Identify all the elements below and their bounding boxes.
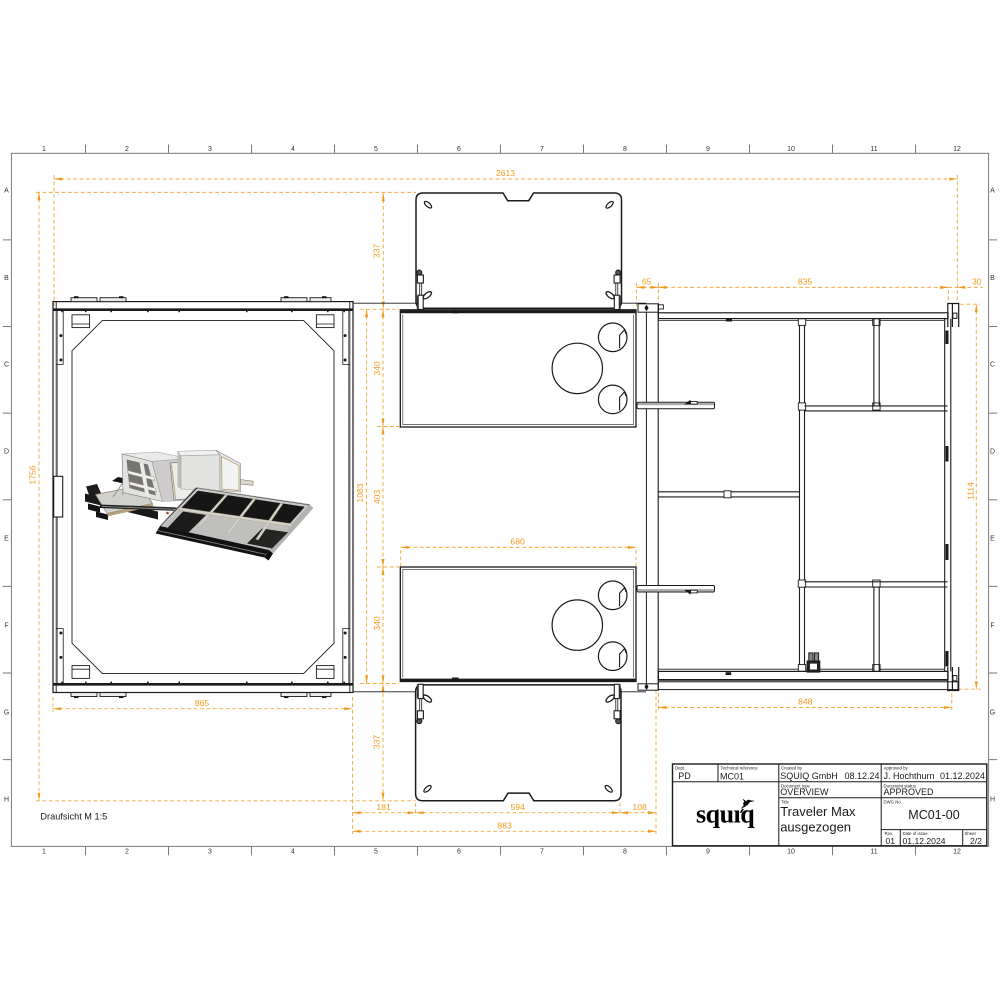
svg-text:403: 403 (372, 490, 382, 505)
svg-text:1: 1 (42, 849, 46, 856)
svg-text:SQUIQ GmbH: SQUIQ GmbH (780, 771, 838, 781)
svg-text:1114: 1114 (966, 482, 976, 500)
svg-text:10: 10 (787, 849, 795, 856)
svg-text:APPROVED: APPROVED (884, 787, 935, 797)
svg-text:6: 6 (457, 849, 461, 856)
svg-text:A: A (990, 188, 995, 195)
svg-text:2: 2 (125, 849, 129, 856)
svg-text:3: 3 (208, 849, 212, 856)
svg-text:3: 3 (208, 146, 212, 153)
svg-text:7: 7 (540, 849, 544, 856)
svg-text:E: E (990, 536, 995, 543)
svg-text:12: 12 (953, 849, 961, 856)
svg-text:30: 30 (972, 277, 982, 287)
svg-text:PD: PD (678, 771, 691, 781)
svg-text:E: E (4, 536, 9, 543)
svg-text:9: 9 (706, 849, 710, 856)
svg-text:Dept.: Dept. (675, 766, 685, 771)
svg-text:8: 8 (623, 146, 627, 153)
svg-text:594: 594 (511, 802, 526, 812)
svg-text:4: 4 (291, 146, 295, 153)
svg-text:848: 848 (798, 697, 813, 707)
svg-text:865: 865 (195, 698, 210, 708)
svg-text:5: 5 (374, 146, 378, 153)
svg-text:C: C (990, 362, 995, 369)
svg-text:4: 4 (291, 849, 295, 856)
svg-text:MC01-00: MC01-00 (908, 808, 959, 822)
svg-text:1: 1 (42, 146, 46, 153)
svg-text:340: 340 (372, 361, 382, 376)
svg-text:11: 11 (870, 146, 877, 153)
svg-text:337: 337 (372, 735, 382, 750)
svg-text:9: 9 (706, 146, 710, 153)
svg-text:Traveler Max: Traveler Max (780, 804, 856, 819)
svg-text:G: G (990, 710, 995, 717)
svg-text:Approved by: Approved by (884, 766, 909, 771)
svg-text:08.12.24: 08.12.24 (844, 771, 879, 781)
svg-text:6: 6 (457, 146, 461, 153)
svg-text:12: 12 (953, 146, 961, 153)
svg-text:340: 340 (372, 616, 382, 631)
svg-text:G: G (4, 710, 9, 717)
svg-text:1756: 1756 (28, 465, 38, 484)
svg-text:883: 883 (497, 821, 512, 831)
svg-text:2/2: 2/2 (970, 836, 982, 846)
svg-text:H: H (990, 797, 995, 804)
svg-text:01.12.2024: 01.12.2024 (940, 771, 985, 781)
svg-text:2613: 2613 (496, 168, 515, 178)
svg-text:337: 337 (372, 244, 382, 259)
svg-text:10: 10 (787, 146, 795, 153)
svg-text:F: F (990, 623, 994, 630)
svg-text:MC01: MC01 (720, 771, 744, 781)
svg-text:108: 108 (632, 802, 647, 812)
svg-text:01.12.2024: 01.12.2024 (903, 836, 946, 846)
svg-text:181: 181 (376, 802, 391, 812)
svg-text:H: H (4, 797, 9, 804)
svg-text:A: A (4, 188, 9, 195)
svg-text:OVERVIEW: OVERVIEW (780, 787, 829, 797)
svg-text:1083: 1083 (355, 483, 365, 502)
svg-text:C: C (4, 362, 9, 369)
svg-text:F: F (4, 623, 8, 630)
svg-text:5: 5 (374, 849, 378, 856)
svg-text:ausgezogen: ausgezogen (780, 820, 851, 835)
svg-text:Technical reference: Technical reference (721, 766, 759, 771)
svg-text:J. Hochthurn: J. Hochthurn (884, 771, 935, 781)
svg-text:DWG No.: DWG No. (884, 799, 902, 804)
svg-text:D: D (4, 449, 9, 456)
svg-text:7: 7 (540, 146, 544, 153)
svg-text:Created by: Created by (781, 766, 803, 771)
svg-text:B: B (990, 275, 995, 282)
svg-text:Draufsicht M 1:5: Draufsicht M 1:5 (40, 812, 107, 822)
svg-text:11: 11 (870, 849, 877, 856)
svg-text:65: 65 (642, 277, 652, 287)
svg-text:2: 2 (125, 146, 129, 153)
svg-text:680: 680 (510, 537, 525, 547)
svg-text:8: 8 (623, 849, 627, 856)
svg-text:01: 01 (886, 836, 896, 846)
svg-text:835: 835 (798, 277, 813, 287)
svg-text:B: B (4, 275, 9, 282)
svg-text:D: D (990, 449, 995, 456)
